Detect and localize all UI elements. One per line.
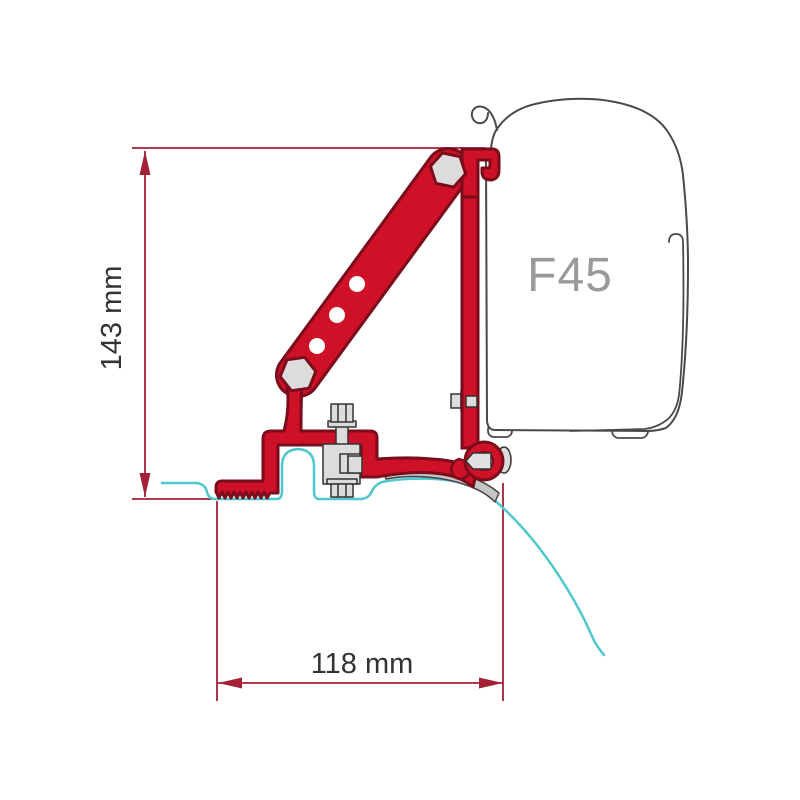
rail-bolt-nut-plate — [466, 396, 477, 407]
arrow-up-icon — [140, 151, 151, 175]
clamp-nut — [331, 484, 353, 497]
clamp-bolt-assembly — [323, 404, 362, 497]
arm-hole-2 — [329, 307, 345, 323]
arrow-left-icon — [218, 678, 242, 689]
rail-bolt-head — [451, 394, 461, 408]
bracket-vertical-rail — [462, 197, 478, 448]
width-dimension-label: 118 mm — [311, 648, 414, 680]
arm-hole-1 — [349, 276, 365, 292]
arm-hole-3 — [309, 338, 325, 354]
diagram-svg: F45 — [0, 0, 800, 800]
awning-model-label: F45 — [527, 249, 613, 302]
awning-case-outline: F45 — [472, 99, 688, 438]
adapter-diagram: F45 — [0, 0, 800, 800]
adapter-bracket — [216, 149, 511, 498]
height-dimension-label: 143 mm — [96, 266, 128, 371]
case-rail-hook-icon — [472, 107, 497, 130]
clamp-bolt-head — [331, 404, 353, 422]
arrow-down-icon — [140, 473, 151, 497]
clamp-tab — [348, 456, 362, 473]
arrow-right-icon — [479, 678, 503, 689]
